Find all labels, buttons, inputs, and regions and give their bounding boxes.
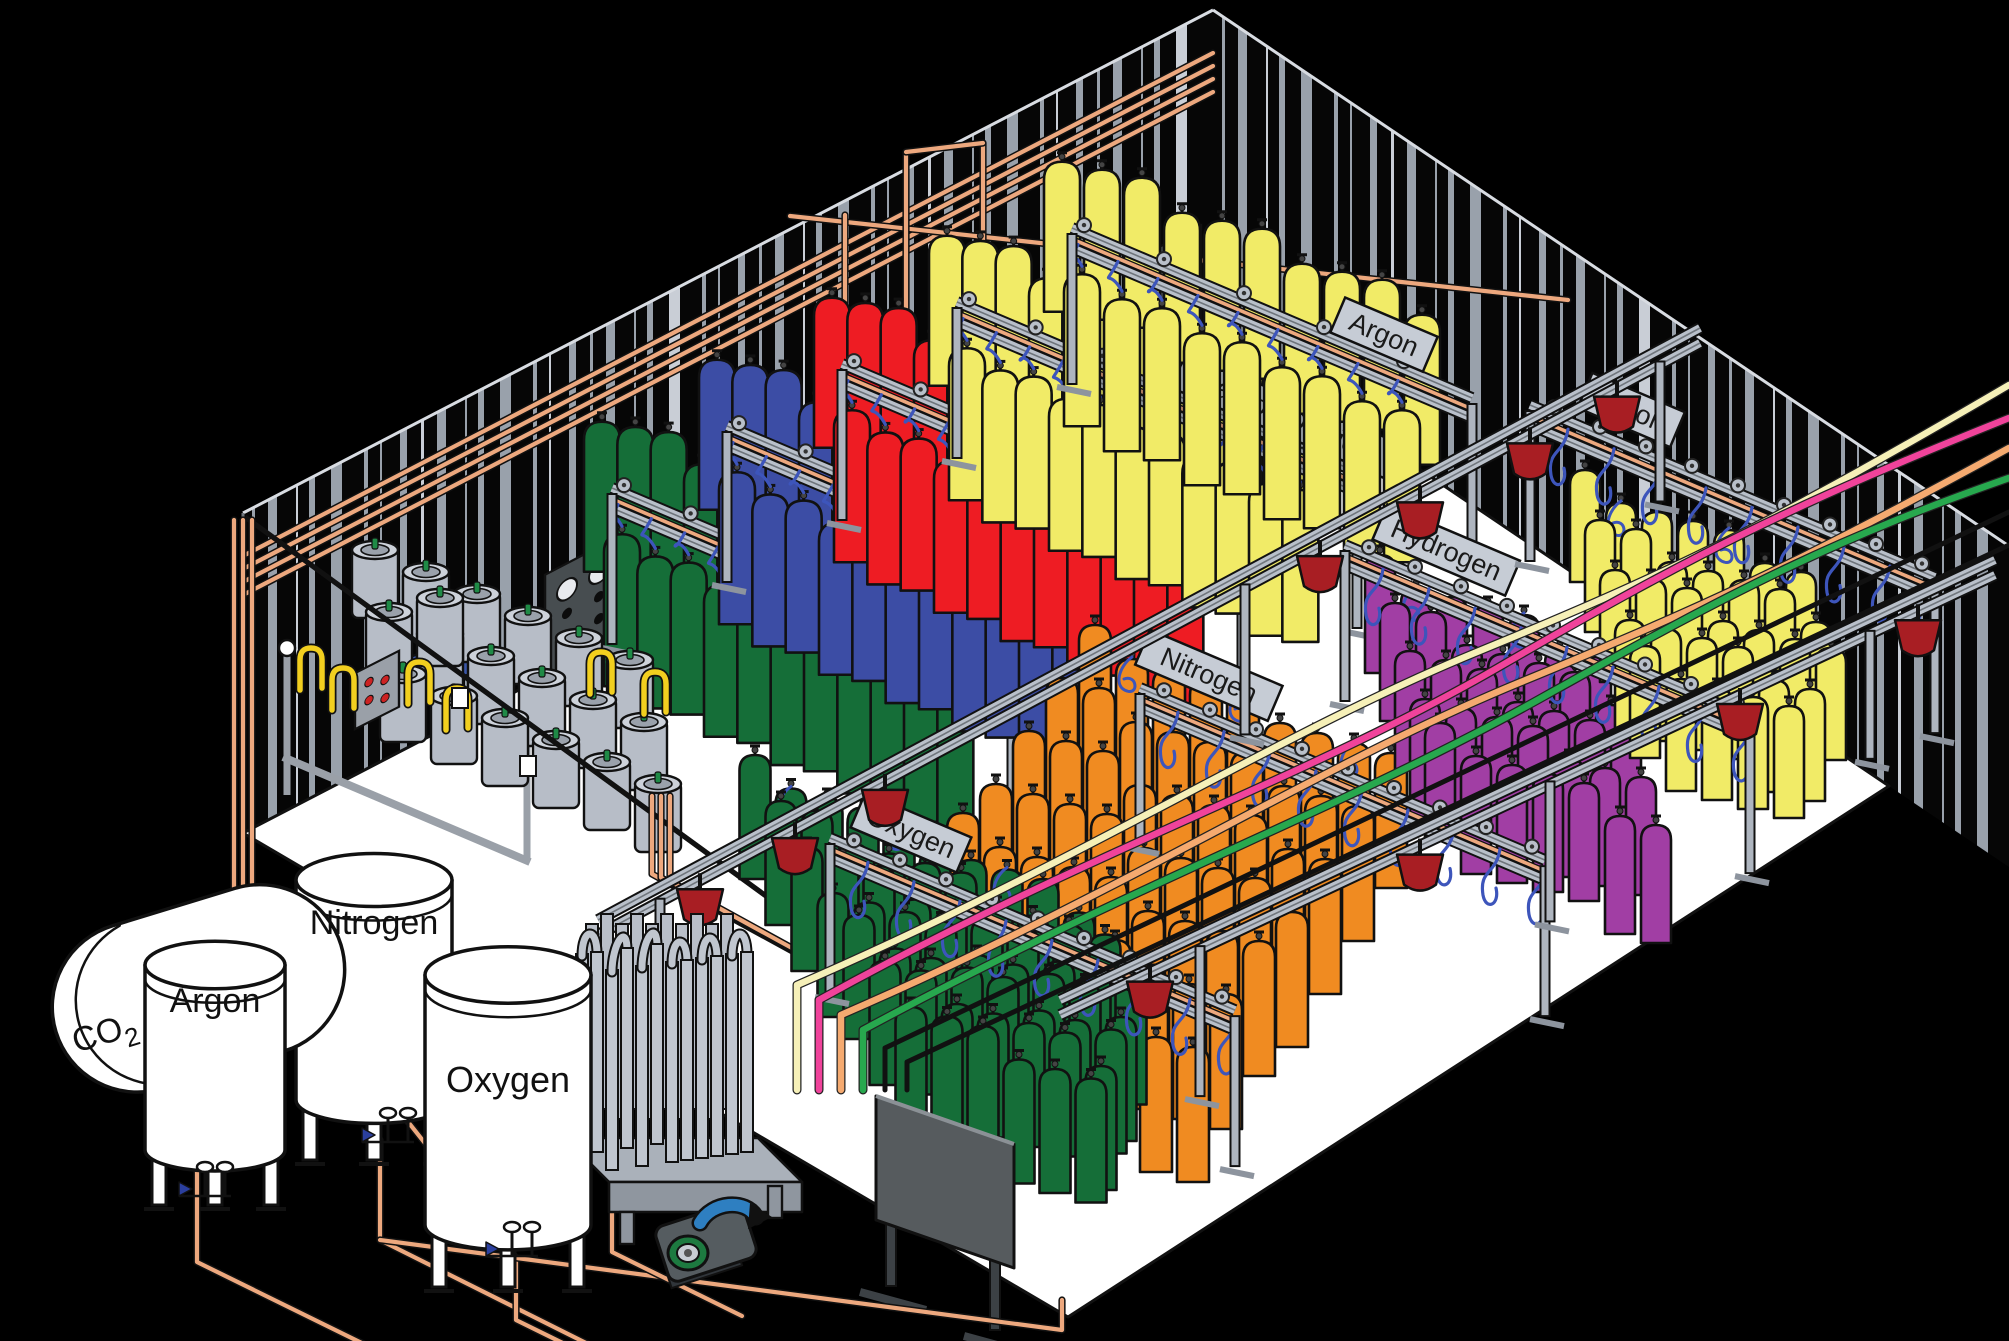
valve-top xyxy=(400,1108,416,1118)
conveyor-trolley xyxy=(1397,855,1443,891)
valve-handwheel-hub xyxy=(737,421,741,425)
cylinder-valve-knob xyxy=(1059,154,1065,160)
valve-handwheel-hub xyxy=(1736,483,1740,487)
pump-inlet-hub xyxy=(684,1249,692,1257)
cylinder-valve-knob xyxy=(1530,718,1536,724)
cylinder-valve-knob xyxy=(1407,643,1413,649)
cylinder-valve-knob xyxy=(1145,903,1151,909)
cylinder-valve-knob xyxy=(1392,595,1398,601)
cylinder-valve-knob xyxy=(1443,652,1449,658)
valve-top xyxy=(197,1162,213,1172)
liquid-cylinder-valve xyxy=(604,750,610,761)
cylinder-valve-knob xyxy=(1756,622,1762,628)
valve-handwheel-hub xyxy=(1874,542,1878,546)
cylinder-valve-knob xyxy=(1582,462,1588,468)
cylinder-valve-knob xyxy=(993,776,999,782)
gas-cylinder xyxy=(1144,308,1180,460)
cylinder-valve-knob xyxy=(882,953,888,959)
cylinder-valve-knob xyxy=(778,793,784,799)
cylinder-valve-knob xyxy=(1219,213,1225,219)
valve-handwheel-hub xyxy=(1689,682,1693,686)
cylinder-valve-knob xyxy=(896,300,902,306)
cylinder-valve-knob xyxy=(1627,612,1633,618)
cylinder-valve-knob xyxy=(1617,808,1623,814)
cylinder-valve-knob xyxy=(714,352,720,358)
support-post xyxy=(1231,1016,1240,1166)
cylinder-valve-knob xyxy=(1182,913,1188,919)
vaporizer-leg xyxy=(620,1212,634,1244)
cylinder-valve-knob xyxy=(1026,723,1032,729)
cylinder-valve-knob xyxy=(856,907,862,913)
vaporizer-tube xyxy=(591,952,603,1152)
cylinder-valve-knob xyxy=(1071,859,1077,865)
cylinder-valve-knob xyxy=(1515,694,1521,700)
valve-top xyxy=(380,1108,396,1118)
cylinder-valve-knob xyxy=(968,852,974,858)
cylinder-valve-knob xyxy=(1153,1029,1159,1035)
cylinder-valve-knob xyxy=(1174,787,1180,793)
cylinder-valve-knob xyxy=(944,228,950,234)
vaporizer-tube xyxy=(666,962,678,1162)
valve-handwheel-hub xyxy=(918,387,922,391)
valve-handwheel-hub xyxy=(1208,708,1212,712)
valve-handwheel-hub xyxy=(688,511,692,515)
valve-handwheel-hub xyxy=(1392,786,1396,790)
cylinder-valve-knob xyxy=(1277,715,1283,721)
support-post xyxy=(1656,361,1665,501)
cylinder-valve-knob xyxy=(1030,786,1036,792)
vaporizer-leg xyxy=(768,1186,782,1218)
vaporizer-tube xyxy=(681,960,693,1160)
cylinder-valve-knob xyxy=(1034,849,1040,855)
support-post xyxy=(838,370,847,520)
cylinder-valve-knob xyxy=(1684,580,1690,586)
cylinder-valve-knob xyxy=(866,895,872,901)
cylinder-valve-knob xyxy=(1464,637,1470,643)
cylinder-valve-knob xyxy=(1720,613,1726,619)
cylinder-valve-knob xyxy=(1092,617,1098,623)
cylinder-valve-knob xyxy=(747,357,753,363)
cylinder-valve-knob xyxy=(990,1006,996,1012)
conveyor-trolley xyxy=(1594,397,1640,433)
cylinder-valve-knob xyxy=(752,747,758,753)
support-post xyxy=(723,432,732,582)
cylinder-valve-knob xyxy=(1612,562,1618,568)
valve-handwheel-hub xyxy=(944,877,948,881)
vaporizer-tube xyxy=(636,966,648,1166)
cylinder-valve-knob xyxy=(1633,521,1639,527)
support-post xyxy=(608,494,617,644)
cylinder-valve-knob xyxy=(1088,1071,1094,1077)
valve-handwheel-hub xyxy=(1690,464,1694,468)
cylinder-valve-knob xyxy=(1256,933,1262,939)
cylinder-valve-knob xyxy=(1026,1015,1032,1021)
valve-handwheel-hub xyxy=(898,858,902,862)
vaporizer-tube xyxy=(621,948,633,1148)
valve-handwheel-hub xyxy=(1459,584,1463,588)
conveyor-trolley xyxy=(862,790,908,826)
gas-cylinder xyxy=(982,370,1018,522)
valve-top xyxy=(217,1162,233,1172)
cylinder-valve-knob xyxy=(1322,851,1328,857)
cylinder-valve-knob xyxy=(1494,709,1500,715)
gas-cylinder xyxy=(786,501,822,653)
support-post xyxy=(1196,946,1205,1096)
gas-cylinder xyxy=(1264,367,1300,519)
vaporizer-tube xyxy=(741,952,753,1152)
cylinder-valve-knob xyxy=(886,846,892,852)
cylinder-valve-knob xyxy=(960,805,966,811)
cylinder-valve-knob xyxy=(944,1009,950,1015)
valve-handwheel-hub xyxy=(1367,545,1371,549)
valve-handwheel-hub xyxy=(1033,325,1037,329)
valve-handwheel-hub xyxy=(1413,565,1417,569)
gas-cylinder xyxy=(1774,706,1804,818)
valve-handwheel-hub xyxy=(1254,727,1258,731)
cylinder-valve-knob xyxy=(977,233,983,239)
cylinder-valve-knob xyxy=(1118,1009,1124,1015)
liquid-cylinder-valve xyxy=(372,538,378,549)
cylinder-valve-knob xyxy=(928,950,934,956)
liquid-cylinder-valve xyxy=(474,582,480,593)
vaporizer-tube xyxy=(726,954,738,1154)
gas-cylinder xyxy=(867,432,903,584)
conveyor-trolley xyxy=(1127,982,1173,1018)
liquid-cylinder-valve xyxy=(423,560,429,571)
liquid-cylinder-valve xyxy=(386,600,392,611)
support-post xyxy=(1746,723,1755,873)
cylinder-valve-knob xyxy=(1786,698,1792,704)
valve-handwheel-hub xyxy=(1220,994,1224,998)
nitrogen-tank-label: Nitrogen xyxy=(310,904,439,942)
cylinder-valve-knob xyxy=(1741,572,1747,578)
cylinder-valve-knob xyxy=(781,362,787,368)
liquid-cylinder-valve xyxy=(437,586,443,597)
cylinder-valve-knob xyxy=(632,419,638,425)
gas-cylinder xyxy=(1104,299,1140,451)
support-post xyxy=(1068,234,1077,384)
gas-cylinder xyxy=(1184,333,1220,485)
valve-handwheel-hub xyxy=(1322,325,1326,329)
conveyor-trolley xyxy=(1717,704,1763,740)
gas-cylinder xyxy=(1224,342,1260,494)
cylinder-valve-knob xyxy=(1422,691,1428,697)
cylinder-valve-knob xyxy=(1339,264,1345,270)
liquid-cylinder-valve xyxy=(627,648,633,659)
gas-cylinder xyxy=(1641,825,1671,943)
valve-handwheel-hub xyxy=(1643,662,1647,666)
cylinder-valve-knob xyxy=(1102,927,1108,933)
cylinder-valve-knob xyxy=(1016,1052,1022,1058)
gas-cylinder xyxy=(1016,377,1052,529)
gas-cylinder xyxy=(1304,376,1340,528)
cylinder-valve-knob xyxy=(1377,547,1383,553)
liquid-cylinder-valve xyxy=(553,728,559,739)
cylinder-valve-knob xyxy=(1597,512,1603,518)
valve-handwheel-hub xyxy=(1082,936,1086,940)
gas-cylinder xyxy=(671,563,707,715)
cylinder-valve-knob xyxy=(1536,655,1542,661)
cylinder-valve-knob xyxy=(1100,743,1106,749)
gas-cylinder xyxy=(1569,783,1599,901)
conveyor-trolley xyxy=(1507,443,1553,479)
station-gauge xyxy=(279,640,295,656)
cylinder-valve-knob xyxy=(1063,733,1069,739)
valve-handwheel-hub xyxy=(1484,825,1488,829)
cylinder-valve-knob xyxy=(1479,661,1485,667)
conveyor-trolley xyxy=(772,838,818,874)
cylinder-valve-knob xyxy=(1762,555,1768,561)
cylinder-valve-knob xyxy=(954,996,960,1002)
liquid-cylinder-valve xyxy=(576,626,582,637)
oxygen-tank-label: Oxygen xyxy=(446,1059,570,1100)
valve-handwheel-hub xyxy=(1530,844,1534,848)
cylinder-valve-knob xyxy=(1104,806,1110,812)
valve-top xyxy=(504,1222,520,1232)
valve-handwheel-hub xyxy=(622,483,626,487)
valve-handwheel-hub xyxy=(1920,561,1924,565)
cylinder-valve-knob xyxy=(1509,757,1515,763)
cylinder-valve-knob xyxy=(1285,841,1291,847)
cylinder-valve-knob xyxy=(1099,162,1105,168)
vaporizer-tube xyxy=(696,958,708,1158)
liquid-cylinder-valve xyxy=(525,604,531,615)
cylinder-valve-knob xyxy=(1813,614,1819,620)
tank-top-rim xyxy=(296,853,452,906)
valve-handwheel-hub xyxy=(803,449,807,453)
valve-handwheel-hub xyxy=(1162,257,1166,261)
cylinder-valve-knob xyxy=(1777,581,1783,587)
support-post xyxy=(1866,631,1875,759)
tank-top-rim xyxy=(425,947,591,1003)
cylinder-valve-knob xyxy=(1259,221,1265,227)
gas-cylinder xyxy=(1040,1069,1071,1193)
vaporizer-tube xyxy=(606,970,618,1170)
vaporizer-tube xyxy=(711,956,723,1156)
gas-cylinder xyxy=(1605,816,1635,934)
conveyor-trolley xyxy=(1397,502,1443,538)
cylinder-valve-knob xyxy=(1807,681,1813,687)
gas-cylinder xyxy=(752,494,788,646)
cylinder-valve-knob xyxy=(1705,563,1711,569)
cylinder-valve-knob xyxy=(1179,205,1185,211)
oxygen-tank xyxy=(424,947,592,1291)
valve-handwheel-hub xyxy=(1174,975,1178,979)
cylinder-valve-knob xyxy=(862,295,868,301)
gas-cylinder xyxy=(1243,941,1275,1076)
gas-cylinder xyxy=(1276,912,1308,1047)
valve-handwheel-hub xyxy=(1300,747,1304,751)
valve-handwheel-hub xyxy=(1242,291,1246,295)
conveyor-trolley xyxy=(1297,556,1343,592)
support-post xyxy=(953,308,962,458)
support-post xyxy=(1468,404,1477,554)
cylinder-valve-knob xyxy=(1052,1061,1058,1067)
cylinder-valve-knob xyxy=(666,424,672,430)
conveyor-trolley xyxy=(1895,620,1941,656)
support-post xyxy=(1341,551,1350,701)
valve-handwheel-hub xyxy=(1644,444,1648,448)
gas-cylinder xyxy=(901,439,937,591)
valve-handwheel-hub xyxy=(1162,688,1166,692)
cylinder-valve-knob xyxy=(1108,1022,1114,1028)
cylinder-valve-knob xyxy=(918,963,924,969)
valve-handwheel-hub xyxy=(1505,604,1509,608)
valve-handwheel-hub xyxy=(1828,522,1832,526)
valve-handwheel-hub xyxy=(852,838,856,842)
cylinder-valve-knob xyxy=(1638,769,1644,775)
valve-handwheel-hub xyxy=(852,359,856,363)
liquid-cylinder-valve xyxy=(539,666,545,677)
cylinder-valve-knob xyxy=(1096,680,1102,686)
valve-handwheel-hub xyxy=(967,297,971,301)
cylinder-valve-knob xyxy=(1379,272,1385,278)
argon-tank-label: Argon xyxy=(170,982,261,1020)
cylinder-valve-knob xyxy=(1419,307,1425,313)
cylinder-valve-knob xyxy=(1139,170,1145,176)
liquid-cylinder-valve xyxy=(655,772,661,783)
cylinder-valve-knob xyxy=(1669,554,1675,560)
cylinder-valve-knob xyxy=(1067,796,1073,802)
junction-box xyxy=(520,756,536,776)
gas-cylinder xyxy=(1076,1079,1107,1203)
cylinder-valve-knob xyxy=(1108,869,1114,875)
cylinder-valve-knob xyxy=(1098,1058,1104,1064)
vaporizer-tube xyxy=(651,944,663,1144)
cylinder-valve-knob xyxy=(1473,748,1479,754)
support-post xyxy=(1241,584,1250,734)
cylinder-valve-knob xyxy=(1186,976,1192,982)
cylinder-valve-knob xyxy=(599,414,605,420)
valve-top xyxy=(524,1222,540,1232)
cylinder-valve-knob xyxy=(1062,1025,1068,1031)
cylinder-valve-knob xyxy=(997,839,1003,845)
cylinder-valve-knob xyxy=(1792,631,1798,637)
junction-box xyxy=(452,688,468,708)
cylinder-valve-knob xyxy=(1699,630,1705,636)
valve-handwheel-hub xyxy=(1082,223,1086,227)
cylinder-valve-knob xyxy=(1653,817,1659,823)
cylinder-valve-knob xyxy=(1299,256,1305,262)
liquid-cylinder-valve xyxy=(488,644,494,655)
support-post xyxy=(1546,781,1555,921)
plant-illustration: OxygenNitrogenHeliumCarbon DioxideArgonN… xyxy=(0,0,2009,1341)
page: OxygenNitrogenHeliumCarbon DioxideArgonN… xyxy=(0,0,2009,1341)
cylinder-valve-knob xyxy=(829,290,835,296)
cylinder-valve-knob xyxy=(1011,238,1017,244)
